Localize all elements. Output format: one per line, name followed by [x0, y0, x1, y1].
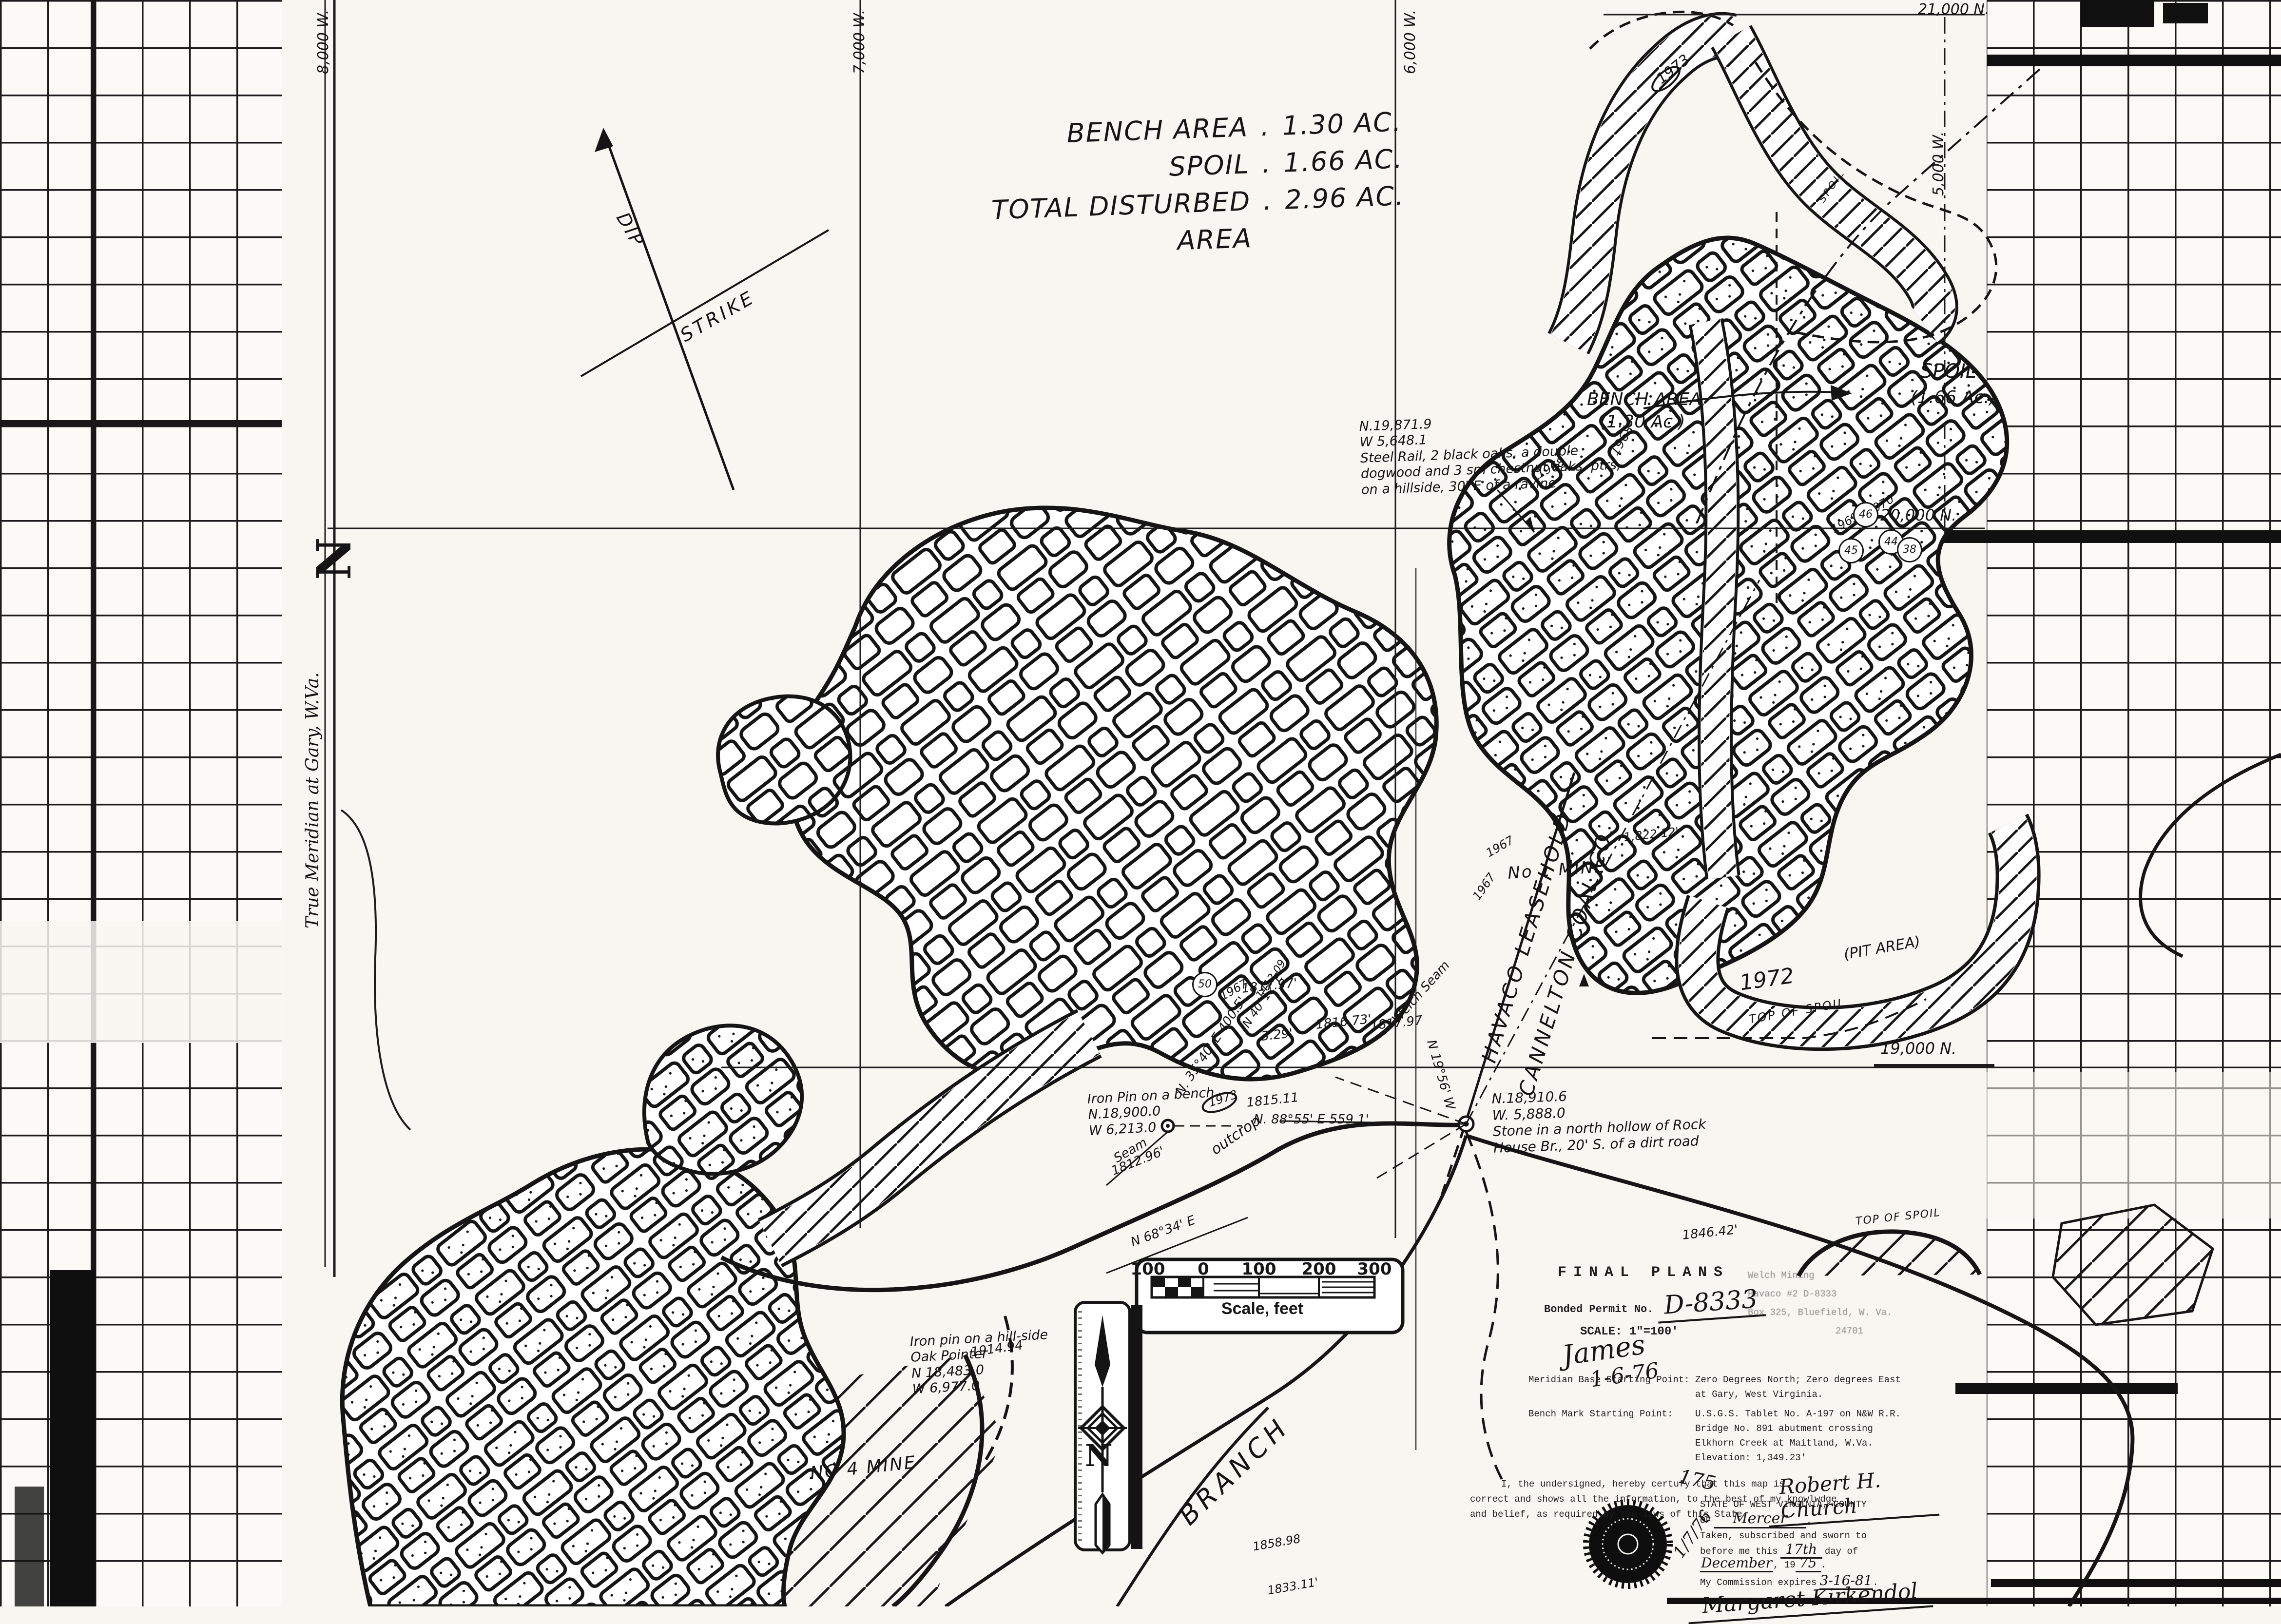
row-value: 2.96 AC. [1284, 176, 1433, 255]
company-line: 24701 [1748, 1322, 1892, 1340]
scale-tick: 100 [1131, 1259, 1165, 1279]
county-line: OF Mercer. [1700, 1510, 1812, 1528]
bench-mark-value: U.S.G.S. Tablet No. A-197 on N&W R.R. Br… [1695, 1407, 1901, 1465]
meridian-base-value: Zero Degrees North; Zero degrees East at… [1695, 1373, 1901, 1402]
value-line: at Gary, West Virginia. [1695, 1387, 1901, 1402]
disturbed-area-table: BENCH AREA . 1.30 AC. SPOIL . 1.66 AC. T… [926, 102, 1438, 268]
meridian-base-label: Meridian Base Starting Point: [1528, 1373, 1692, 1387]
scale-tick: 200 [1302, 1259, 1336, 1279]
value-line: Elkhorn Creek at Maitland, W.Va. [1695, 1436, 1901, 1450]
year-prefix: , 19 [1773, 1560, 1796, 1570]
north-arrow [1075, 1302, 1142, 1553]
row-separator: . [1249, 145, 1284, 183]
strike-dip-symbol [581, 128, 829, 490]
year-value: 75 [1799, 1555, 1817, 1571]
bench-mark-label: Bench Mark Starting Point: [1528, 1407, 1692, 1421]
company-line: Havaco #2 D-8333 [1748, 1285, 1892, 1303]
row-label: TOTAL DISTURBED AREA [928, 183, 1253, 268]
company-address: Welch Mining Havaco #2 D-8333 Box 325, B… [1748, 1266, 1892, 1340]
month-value: December [1701, 1555, 1772, 1571]
scale-bar: 100 0 100 200 300 Scale, feet [1133, 1257, 1406, 1339]
scale-tick: 0 [1198, 1259, 1209, 1279]
company-line: Box 325, Bluefield, W. Va. [1748, 1303, 1892, 1322]
value-line: Elevation: 1,349.23' [1695, 1450, 1901, 1465]
value-line: U.S.G.S. Tablet No. A-197 on N&W R.R. [1695, 1407, 1901, 1421]
company-line: Welch Mining [1748, 1266, 1892, 1285]
of-label: OF [1700, 1515, 1711, 1526]
row-value: 1.30 AC. [1282, 102, 1429, 144]
mine-workings-middle [718, 508, 1436, 1079]
film-grid-right [1941, 0, 2281, 1606]
bonded-permit-label: Bonded Permit No. [1544, 1302, 1653, 1317]
scale-tick: 300 [1357, 1259, 1392, 1279]
row-value: 1.66 AC. [1283, 139, 1430, 181]
sworn-text: day of [1825, 1546, 1858, 1557]
row-separator: . [1248, 108, 1283, 146]
scale-caption: Scale, feet [1221, 1299, 1303, 1318]
sworn-line-3: December, 1975. [1700, 1555, 1826, 1572]
map-title: FINAL PLANS [1558, 1265, 1729, 1280]
film-grid-left [0, 0, 282, 1606]
scale-tick: 100 [1242, 1259, 1276, 1279]
value-line: Zero Degrees North; Zero degrees East [1695, 1373, 1901, 1387]
period: . [1806, 1515, 1812, 1526]
scanned-mine-map: { "map_title": "Final Plans mine map, Bo… [0, 0, 2281, 1606]
mine-workings-lower [342, 1025, 844, 1606]
row-separator: . [1250, 182, 1287, 257]
value-line: Bridge No. 891 abutment crossing [1695, 1421, 1901, 1436]
county-value: Mercer [1733, 1510, 1787, 1527]
